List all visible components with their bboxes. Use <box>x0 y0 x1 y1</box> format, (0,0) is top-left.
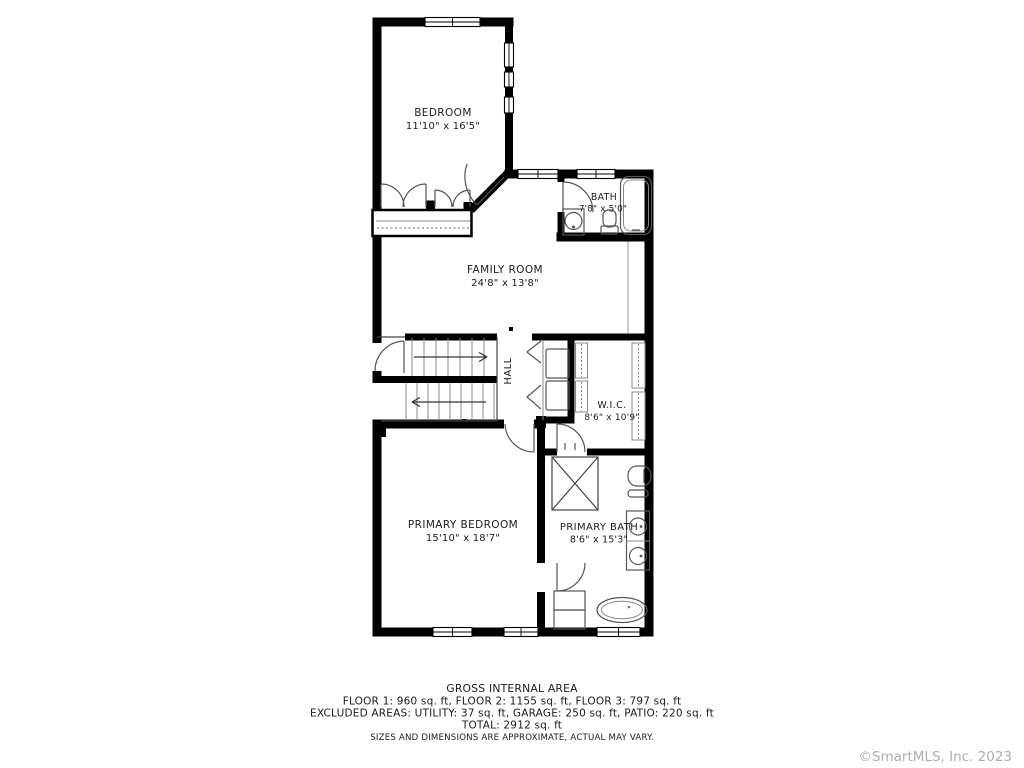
footer-floors: FLOOR 1: 960 sq. ft, FLOOR 2: 1155 sq. f… <box>343 696 682 708</box>
laundry-closet <box>543 341 569 420</box>
room-label-bath: BATH <box>591 192 617 203</box>
freestanding-tub-icon <box>597 598 647 623</box>
footer-total: TOTAL: 2912 sq. ft <box>461 720 562 732</box>
window <box>425 18 480 27</box>
room-label-wic: W.I.C. <box>597 400 626 411</box>
footer-disclaimer: SIZES AND DIMENSIONS ARE APPROXIMATE, AC… <box>370 733 654 743</box>
window <box>597 628 640 637</box>
room-dims-wic: 8'6" x 10'9" <box>584 413 639 423</box>
linen-shelves <box>554 591 585 629</box>
footer-area-summary: GROSS INTERNAL AREA FLOOR 1: 960 sq. ft,… <box>310 682 714 743</box>
closet-door-arc <box>403 184 426 207</box>
floorplan-page: BEDROOM 11'10" x 16'5" BATH 7'8" x 5'0" … <box>0 0 1024 768</box>
window <box>505 43 514 67</box>
floor-plan-canvas: BEDROOM 11'10" x 16'5" BATH 7'8" x 5'0" … <box>0 0 1024 768</box>
window <box>504 628 538 637</box>
bifold-doors <box>527 341 541 409</box>
room-dims-bedroom: 11'10" x 16'5" <box>406 121 480 132</box>
washer-icon <box>546 349 569 378</box>
room-label-family-room: FAMILY ROOM <box>467 264 543 276</box>
dryer-icon <box>546 381 569 410</box>
room-label-primary-bath: PRIMARY BATH <box>560 522 638 533</box>
room-dims-family-room: 24'8" x 13'8" <box>471 278 539 289</box>
stairs-up-arrow <box>414 353 487 362</box>
window <box>577 170 615 179</box>
stairs-door-arc <box>375 341 404 373</box>
room-label-bedroom: BEDROOM <box>414 107 472 119</box>
primary-bath-door-arc <box>557 563 585 591</box>
footer-excluded: EXCLUDED AREAS: UTILITY: 37 sq. ft, GARA… <box>310 708 714 720</box>
wall-corner-block <box>373 420 386 437</box>
window <box>505 72 514 87</box>
room-dims-primary-bedroom: 15'10" x 18'7" <box>426 533 500 544</box>
primary-bedroom-door-arc <box>505 424 534 452</box>
wic-door-arc <box>557 424 585 452</box>
window <box>505 97 514 113</box>
room-label-hall: HALL <box>503 357 514 384</box>
room-dims-primary-bath: 8'6" x 15'3" <box>570 535 628 546</box>
watermark-copyright: ©SmartMLS, Inc. 2023 <box>858 749 1012 765</box>
closet-body <box>373 210 472 236</box>
closet-door-arc <box>381 184 404 207</box>
wic-shelving <box>576 343 646 440</box>
window <box>518 170 558 179</box>
wall-jamb <box>536 416 546 428</box>
stairs-down-arrow <box>412 398 486 407</box>
footer-title: GROSS INTERNAL AREA <box>446 682 578 695</box>
closet-door-arc <box>435 190 452 207</box>
room-dims-bath: 7'8" x 5'0" <box>579 205 627 215</box>
bedroom-closet <box>373 184 472 236</box>
window <box>433 628 472 637</box>
room-label-primary-bedroom: PRIMARY BEDROOM <box>408 519 518 531</box>
